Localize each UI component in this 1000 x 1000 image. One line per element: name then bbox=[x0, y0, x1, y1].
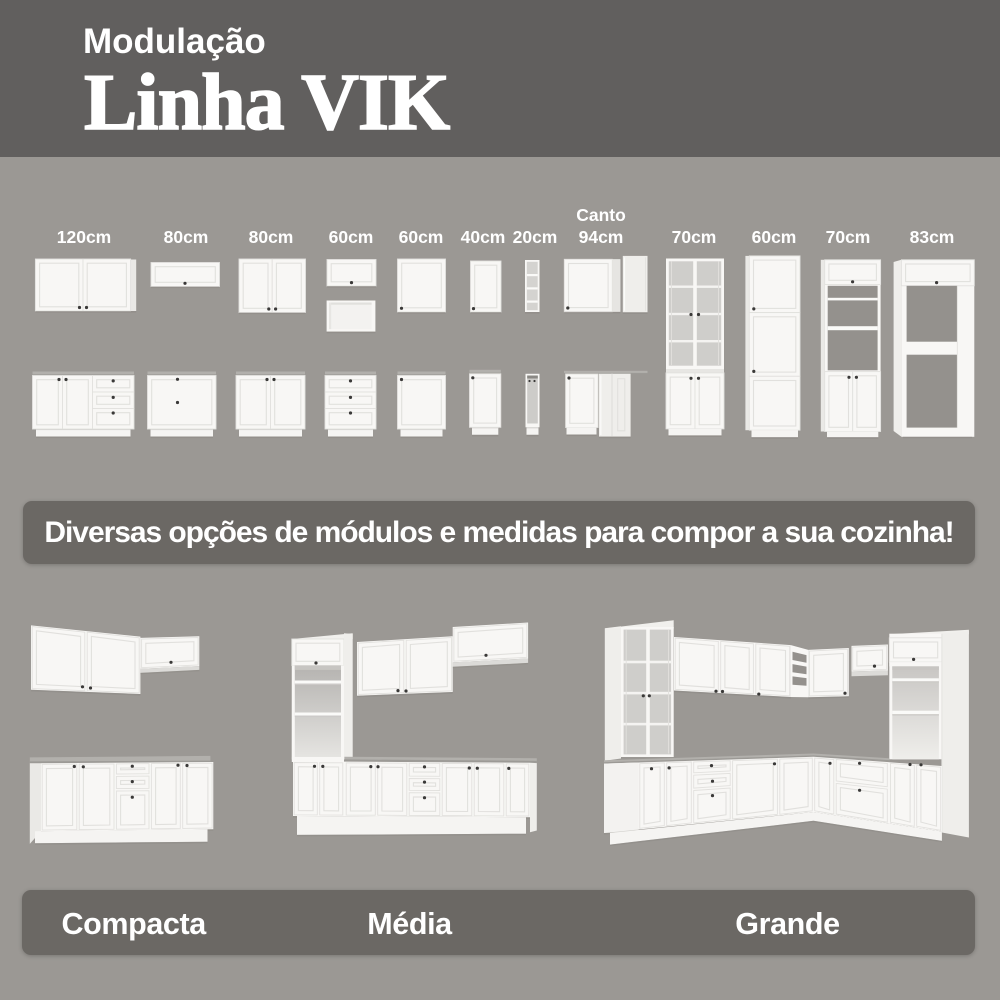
svg-text:40cm: 40cm bbox=[461, 227, 506, 247]
svg-text:20cm: 20cm bbox=[513, 227, 558, 247]
svg-text:70cm: 70cm bbox=[672, 227, 717, 247]
svg-text:60cm: 60cm bbox=[329, 227, 374, 247]
svg-text:Canto: Canto bbox=[576, 205, 626, 225]
svg-text:120cm: 120cm bbox=[57, 227, 112, 247]
svg-text:80cm: 80cm bbox=[164, 227, 209, 247]
svg-text:60cm: 60cm bbox=[399, 227, 444, 247]
svg-text:83cm: 83cm bbox=[910, 227, 955, 247]
svg-text:94cm: 94cm bbox=[579, 227, 624, 247]
svg-text:60cm: 60cm bbox=[752, 227, 797, 247]
svg-text:70cm: 70cm bbox=[826, 227, 871, 247]
svg-text:80cm: 80cm bbox=[249, 227, 294, 247]
